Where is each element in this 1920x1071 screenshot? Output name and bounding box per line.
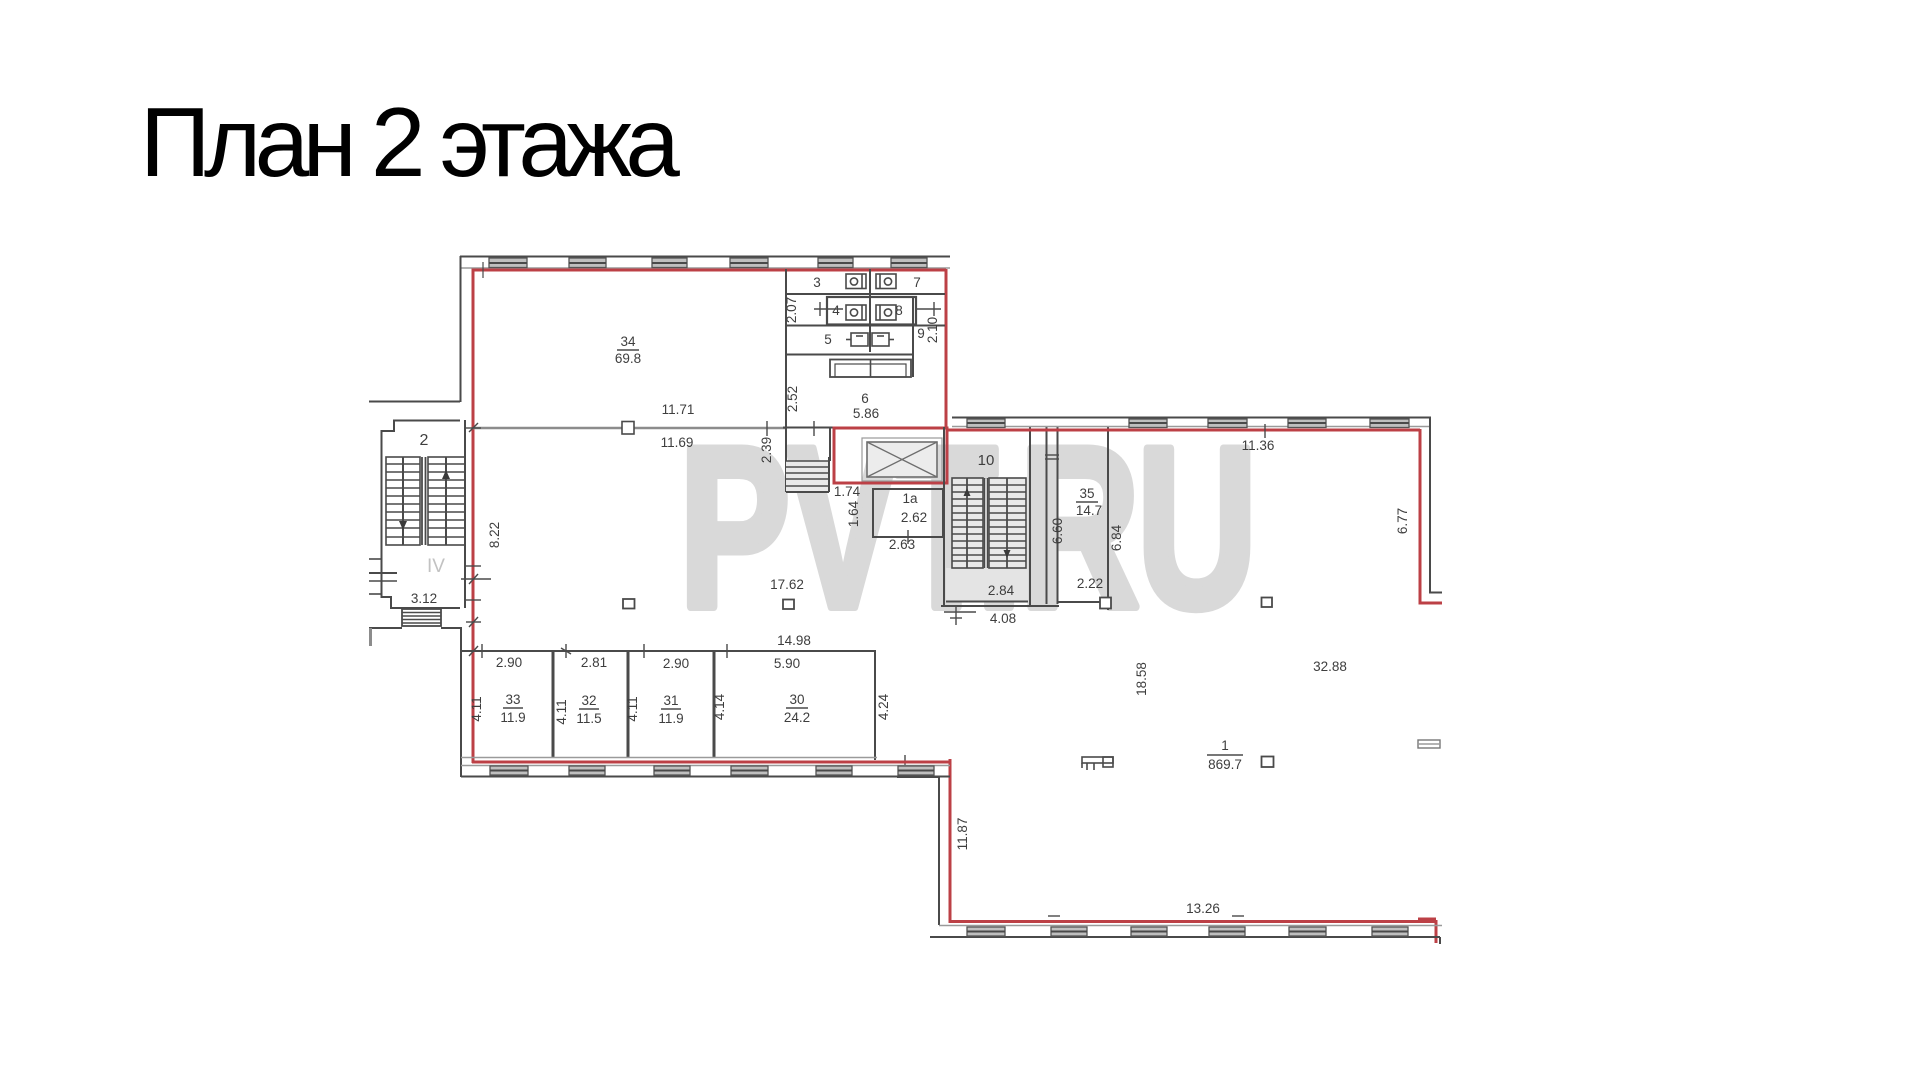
svg-text:32.88: 32.88	[1313, 659, 1347, 674]
svg-text:2.22: 2.22	[1077, 576, 1103, 591]
svg-text:2.62: 2.62	[901, 510, 927, 525]
svg-text:2.10: 2.10	[925, 317, 940, 343]
svg-text:30: 30	[789, 692, 804, 707]
svg-text:14.98: 14.98	[777, 633, 811, 648]
svg-text:2.39: 2.39	[759, 437, 774, 463]
svg-text:2.90: 2.90	[496, 655, 522, 670]
svg-text:5: 5	[824, 332, 832, 347]
svg-text:2.07: 2.07	[784, 297, 799, 323]
svg-text:24.2: 24.2	[784, 710, 810, 725]
svg-text:4.14: 4.14	[712, 693, 727, 720]
svg-text:6: 6	[861, 391, 869, 406]
svg-text:18.58: 18.58	[1134, 662, 1149, 696]
svg-text:5.90: 5.90	[774, 656, 800, 671]
svg-text:8.22: 8.22	[487, 522, 502, 548]
svg-text:11.87: 11.87	[955, 818, 970, 851]
svg-text:4.11: 4.11	[469, 696, 484, 721]
svg-text:11.71: 11.71	[662, 402, 695, 417]
svg-text:8: 8	[895, 303, 903, 318]
svg-text:2.52: 2.52	[785, 386, 800, 412]
svg-text:11.9: 11.9	[658, 711, 683, 726]
svg-text:2: 2	[420, 432, 429, 449]
svg-text:10: 10	[978, 452, 995, 469]
svg-text:1a: 1a	[902, 491, 918, 506]
svg-text:1: 1	[1221, 738, 1229, 753]
svg-text:14.7: 14.7	[1076, 503, 1102, 518]
svg-text:17.62: 17.62	[770, 577, 804, 592]
svg-text:7: 7	[913, 275, 921, 290]
svg-text:2.81: 2.81	[581, 655, 607, 670]
svg-text:2.63: 2.63	[889, 537, 915, 552]
svg-text:2.84: 2.84	[988, 583, 1015, 598]
svg-text:31: 31	[663, 693, 678, 708]
svg-text:4.24: 4.24	[876, 693, 891, 720]
svg-text:6.84: 6.84	[1109, 524, 1124, 551]
svg-text:11.69: 11.69	[661, 435, 694, 450]
svg-text:3.12: 3.12	[411, 591, 437, 606]
svg-text:13.26: 13.26	[1186, 901, 1220, 916]
svg-text:6.77: 6.77	[1395, 508, 1410, 534]
svg-text:План 2 этажа: План 2 этажа	[140, 87, 680, 197]
svg-text:4.11: 4.11	[554, 699, 569, 724]
svg-text:5.86: 5.86	[853, 406, 879, 421]
svg-text:2.90: 2.90	[663, 656, 689, 671]
svg-text:4: 4	[832, 303, 840, 318]
svg-text:1.74: 1.74	[834, 484, 861, 499]
svg-text:6.60: 6.60	[1050, 518, 1065, 544]
svg-text:11.36: 11.36	[1242, 438, 1275, 453]
svg-text:4.08: 4.08	[990, 611, 1016, 626]
svg-text:869.7: 869.7	[1208, 757, 1242, 772]
svg-text:35: 35	[1079, 486, 1094, 501]
svg-text:9: 9	[917, 326, 925, 341]
svg-text:11.9: 11.9	[500, 710, 525, 725]
svg-text:11.5: 11.5	[576, 711, 601, 726]
svg-text:3: 3	[813, 275, 821, 290]
svg-text:33: 33	[505, 692, 520, 707]
svg-text:4.11: 4.11	[625, 696, 640, 721]
svg-text:32: 32	[581, 693, 596, 708]
svg-text:34: 34	[620, 334, 636, 349]
svg-text:IV: IV	[427, 556, 445, 577]
svg-text:69.8: 69.8	[615, 351, 641, 366]
svg-text:1.64: 1.64	[846, 500, 861, 527]
